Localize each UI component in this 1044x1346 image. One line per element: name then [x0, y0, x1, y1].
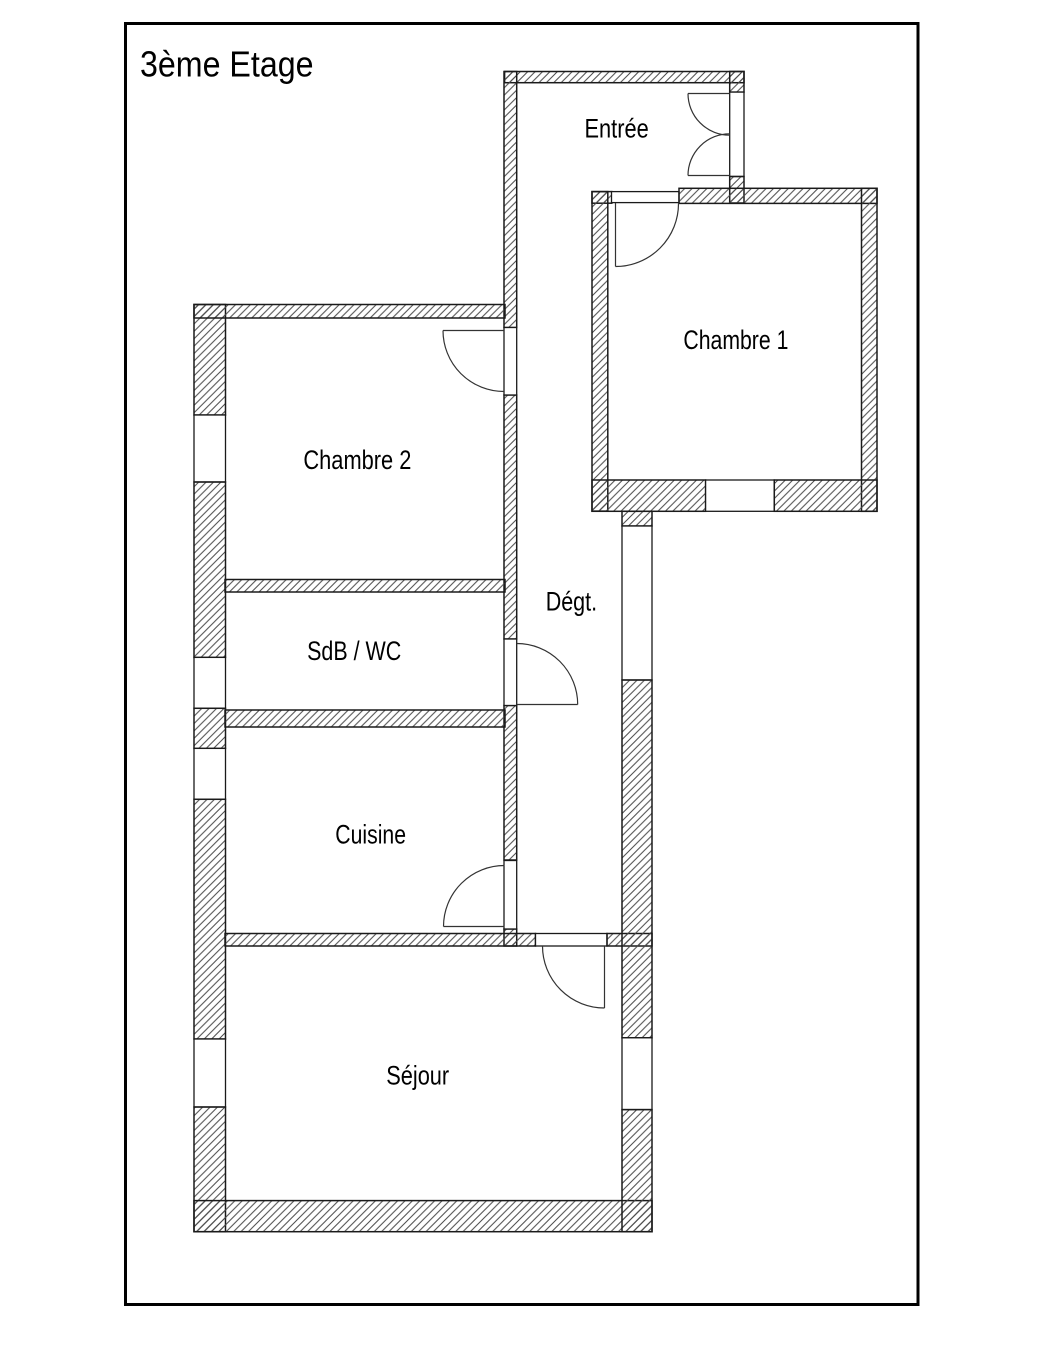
svg-text:Chambre 1: Chambre 1 — [683, 325, 788, 355]
svg-text:3ème Etage: 3ème Etage — [140, 43, 314, 84]
svg-text:SdB / WC: SdB / WC — [307, 636, 401, 666]
svg-text:Dégt.: Dégt. — [546, 587, 597, 617]
svg-text:Séjour: Séjour — [386, 1061, 449, 1091]
svg-text:Cuisine: Cuisine — [335, 819, 406, 849]
svg-text:Entrée: Entrée — [585, 114, 649, 144]
svg-text:Chambre 2: Chambre 2 — [303, 445, 411, 475]
